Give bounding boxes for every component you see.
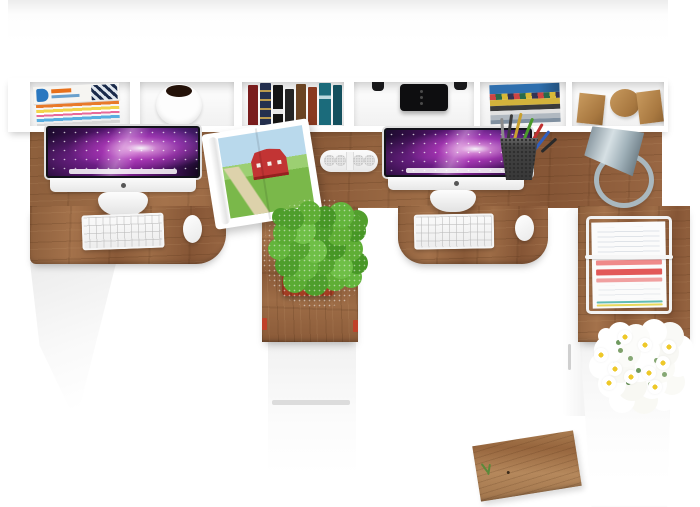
red-barn [249,146,289,180]
daisy-flower [648,380,662,394]
flower-stems [618,348,623,353]
document-text-lines [598,284,660,299]
magazine-logo [36,88,49,102]
speaker-grille [324,155,335,166]
potted-plant [262,198,374,308]
headphone-button [420,96,423,99]
white-flowers [588,318,688,418]
book-spine [273,85,283,125]
screw-dot [507,471,510,474]
highlight-band [596,259,661,265]
white-mug [156,84,202,126]
documents [591,221,666,308]
plant-sprig [487,464,491,475]
leaf-speckle [262,198,374,308]
document-text-lines [597,227,660,254]
keyboard-left [81,213,164,251]
book-spine [260,83,271,125]
magazines-stack [33,83,121,126]
paper-edge [597,303,662,306]
daisy-flower [624,370,638,384]
headphone-earcup [454,82,467,90]
imac-left-screen [46,126,200,178]
shelf-unit [8,78,668,132]
book-spine [319,83,331,125]
wood-bookend-cube [636,90,664,125]
magazine-page-edges [36,101,120,126]
daisy-flower [642,366,656,380]
headphones-black [400,84,448,111]
headphone-button [420,102,423,105]
daisy-flower [618,330,632,344]
mouse-left [183,215,202,243]
daisy-flower [608,362,622,376]
book-spine [333,85,342,125]
shelf-cell-magazines [30,82,130,126]
dock-bar [69,169,177,174]
daisy-flower [602,376,616,390]
book-spine [308,87,317,125]
imac-left-chin [50,178,196,192]
speaker-grille [353,155,364,166]
shelf-cell-bookends [572,82,664,126]
speaker-grille [364,155,375,166]
shelf-cell-stacked-books [480,82,566,126]
babys-breath-cloud [598,328,614,344]
speaker-grille [335,155,346,166]
wire-document-tray [586,216,672,314]
magazine-text-bar [51,94,79,98]
red-accent-left [262,318,267,330]
shelf-top-surface [8,0,668,78]
daisy-flower [662,340,676,354]
book-spine [248,85,258,125]
mug-opening [166,85,192,97]
headphone-button [420,90,423,93]
apple-logo-icon [454,181,459,186]
daisy-flower [638,338,652,352]
workspace-scene [0,0,700,507]
wood-bookend-cube [577,93,606,126]
headphone-earcup [372,82,384,91]
daisy-flower [656,356,670,370]
imac-right-chin [388,177,524,190]
highlight-band [597,269,662,276]
pill-speaker [320,150,378,172]
highlight-band [597,277,662,282]
drawer-handle [272,400,350,405]
mouse-right [515,215,534,241]
pencil-cup [500,138,538,180]
magazine-photo [91,84,118,100]
apple-logo-icon [121,183,126,188]
wood-bench-plank [472,430,582,501]
magazine-headline-bar [51,88,71,93]
daisy-flower [594,348,608,362]
dock-bar [406,168,510,173]
tray-front-wire [585,255,673,259]
cabinet-door-handle [568,344,571,370]
center-drawer-cabinet [268,342,356,507]
desk-left-leg [28,262,124,422]
shelf-cell-headphones [354,82,474,126]
red-accent-right [353,320,358,332]
keyboard-right [414,213,495,249]
shelf-cell-mug [140,82,234,126]
